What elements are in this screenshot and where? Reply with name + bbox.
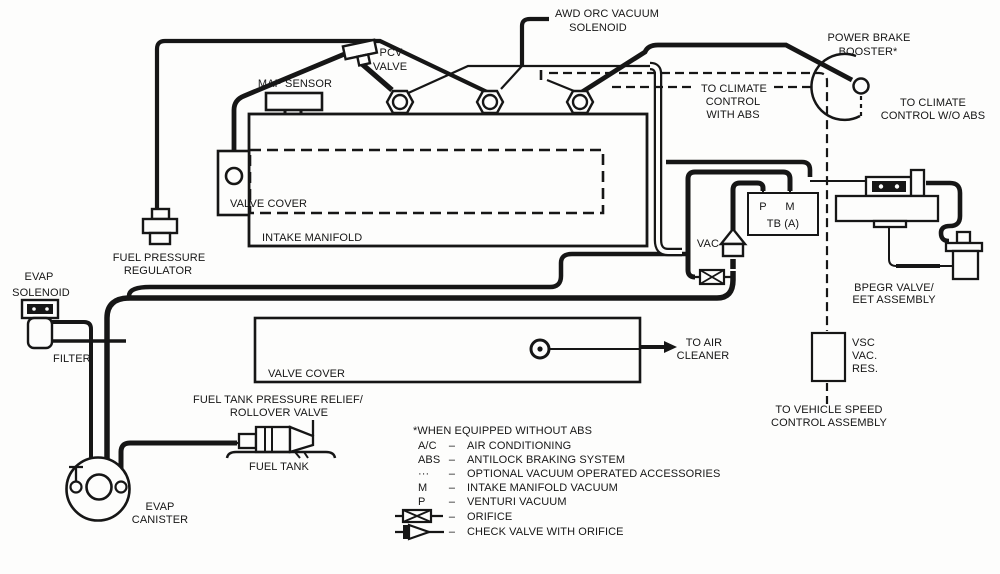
legend-desc-ac: AIR CONDITIONING (467, 440, 571, 452)
climate-wo-abs-label: TO CLIMATE (900, 97, 966, 109)
legend-sep: – (449, 454, 456, 466)
intake-manifold-box (249, 114, 647, 246)
vsc-label: VSC (852, 337, 875, 349)
evap-solenoid-label: EVAP (25, 271, 54, 283)
hex-fitting-1-icon (387, 91, 413, 113)
power-brake-booster-icon (811, 54, 868, 120)
legend-sep: – (449, 526, 456, 538)
legend-sep: – (449, 496, 456, 508)
vsc-label3: RES. (852, 363, 878, 375)
fuel-pressure-label2: REGULATOR (124, 265, 192, 277)
legend-desc-abs: ANTILOCK BRAKING SYSTEM (467, 454, 625, 466)
evap-canister-label2: CANISTER (132, 514, 188, 526)
evap-canister-icon (67, 458, 130, 521)
legend-key-m: M (418, 482, 427, 494)
map-sensor-icon (266, 93, 322, 114)
fuel-pressure-label: FUEL PRESSURE (113, 252, 206, 264)
evap-solenoid-icon (22, 300, 58, 348)
legend-orifice-icon (395, 510, 443, 522)
climate-abs-label2: CONTROL (706, 96, 760, 108)
power-brake-label2: BOOSTER* (839, 46, 898, 58)
tb-label: TB (A) (767, 218, 799, 230)
legend-desc-optional: OPTIONAL VACUUM OPERATED ACCESSORIES (467, 468, 720, 480)
legend-desc-venturi: VENTURI VACUUM (467, 496, 567, 508)
air-cleaner-label2: CLEANER (677, 350, 730, 362)
climate-abs-label3: WITH ABS (706, 109, 759, 121)
filter-label: FILTER (53, 353, 91, 365)
climate-wo-abs-label2: CONTROL W/O ABS (881, 110, 985, 122)
climate-abs-label: TO CLIMATE (701, 83, 767, 95)
legend-desc-manifold: INTAKE MANIFOLD VACUUM (467, 482, 618, 494)
evap-solenoid-label2: SOLENOID (12, 287, 70, 299)
legend-desc-check-valve: CHECK VALVE WITH ORIFICE (467, 526, 624, 538)
bpegr-label: BPEGR VALVE/ (854, 282, 934, 294)
air-cleaner-arrow-icon (664, 341, 677, 353)
port-p-label: P (759, 201, 766, 213)
legend-key-dots: ··· (418, 468, 429, 480)
speed-control-label: TO VEHICLE SPEED (775, 404, 882, 416)
legend: *WHEN EQUIPPED WITHOUT ABS A/C – AIR CON… (395, 425, 720, 539)
map-sensor-label: MAP SENSOR (258, 78, 332, 90)
valve-cover-port-icon (226, 168, 242, 184)
eet-cap-icon (957, 232, 970, 243)
port-m-label: M (785, 201, 794, 213)
legend-desc-orifice: ORIFICE (467, 511, 512, 523)
legend-sep: – (449, 468, 456, 480)
speed-control-label2: CONTROL ASSEMBLY (771, 417, 887, 429)
legend-sep: – (449, 511, 456, 523)
legend-sep: – (449, 440, 456, 452)
fuel-tank-label: FUEL TANK (249, 461, 310, 473)
fuel-tank-icon (227, 452, 335, 458)
vsc-vacuum-reservoir-box (812, 333, 845, 381)
valve-cover-top-label: VALVE COVER (230, 198, 307, 210)
awd-solenoid-label2: SOLENOID (569, 22, 627, 34)
air-cleaner-label: TO AIR (686, 337, 722, 349)
vac-label: VAC (697, 238, 719, 250)
pcv-valve-label2: VALVE (373, 61, 407, 73)
hex-fitting-icons (387, 91, 593, 113)
evap-canister-label: EVAP (146, 501, 175, 513)
legend-key-abs: ABS (418, 454, 440, 466)
fuel-pressure-regulator-icon (143, 209, 177, 244)
legend-key-ac: A/C (418, 440, 437, 452)
hex-fitting-3-icon (567, 91, 593, 113)
legend-sep: – (449, 482, 456, 494)
awd-solenoid-label: AWD ORC VACUUM (555, 8, 659, 20)
legend-note: *WHEN EQUIPPED WITHOUT ABS (413, 425, 592, 437)
power-brake-label: POWER BRAKE (827, 32, 910, 44)
legend-check-valve-icon (395, 525, 444, 539)
orifice-icon (700, 270, 724, 284)
vsc-label2: VAC. (852, 350, 877, 362)
vacuum-hose-diagram: AWD ORC VACUUM SOLENOID PCV VALVE MAP SE… (0, 0, 1000, 574)
valve-cover-bottom-label: VALVE COVER (268, 368, 345, 380)
legend-key-p: P (418, 496, 425, 508)
bpegr-label2: EET ASSEMBLY (852, 294, 936, 306)
pcv-valve-label: PCV (380, 47, 403, 59)
hex-fitting-2-icon (477, 91, 503, 113)
rollover-valve-label: FUEL TANK PRESSURE RELIEF/ (193, 394, 364, 406)
vac-check-valve-icon (721, 229, 745, 256)
vacuum-diagram-page: AWD ORC VACUUM SOLENOID PCV VALVE MAP SE… (0, 0, 1000, 574)
rollover-valve-label2: ROLLOVER VALVE (230, 407, 328, 419)
intake-manifold-label: INTAKE MANIFOLD (262, 232, 362, 244)
